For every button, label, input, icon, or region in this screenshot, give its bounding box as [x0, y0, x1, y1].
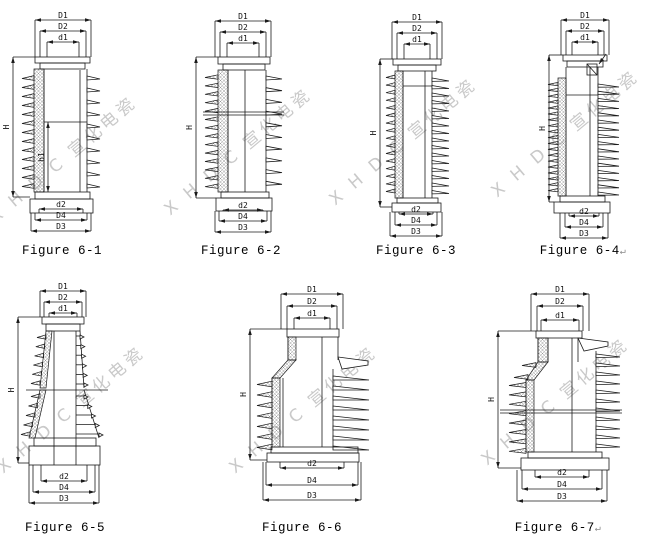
shed-rib [22, 130, 34, 135]
shed-rib [31, 394, 40, 398]
section-band [272, 360, 296, 378]
shed-rib [386, 136, 395, 140]
figure-6-6: D1D2d1Hd2D4D3 [239, 285, 369, 502]
shed-fin [596, 444, 620, 448]
dim-arrow [496, 462, 500, 468]
shed-rib [22, 166, 34, 171]
dim-arrow [597, 225, 603, 229]
shed-fin [333, 376, 369, 380]
figure-6-5: D1D2d1Hd2D4D3 [7, 282, 108, 505]
dim-arrow [93, 501, 99, 505]
top-cap [567, 61, 603, 67]
dim-arrow [566, 29, 572, 33]
bottom-dim-label: D3 [238, 223, 248, 232]
figure-6-2: D1D2d1Hd2D4D3 [185, 12, 284, 234]
shed-rib [257, 444, 272, 450]
dim-arrow [496, 331, 500, 337]
shed-fin [596, 435, 620, 439]
shed-rib [509, 420, 526, 425]
dim-arrow [427, 212, 433, 216]
shed-rib [22, 94, 34, 99]
section-band [218, 70, 228, 192]
dim-arrow [565, 225, 571, 229]
dim-arrow [215, 19, 221, 23]
shed-rib [509, 448, 526, 453]
dim-arrow [535, 475, 541, 479]
shoulder-lip [338, 357, 368, 369]
top-dim-label: D1 [412, 13, 422, 22]
ring-tooth [82, 354, 86, 358]
dim-arrow [583, 475, 589, 479]
ring-tooth [83, 373, 87, 377]
shed-fin [596, 426, 620, 430]
shed-fin [598, 149, 619, 152]
dim-arrow [81, 218, 87, 222]
shed-rib [386, 121, 395, 125]
height-dim-label: H [538, 126, 547, 131]
ring-tooth [88, 405, 92, 409]
bottom-flange [397, 198, 438, 203]
dim-arrow [265, 19, 271, 23]
shed-rib [548, 106, 558, 109]
dim-arrow [40, 29, 46, 33]
dim-arrow [573, 318, 579, 322]
shed-rib [548, 100, 558, 103]
shed-fin [87, 184, 100, 188]
shed-rib [205, 83, 218, 87]
dim-arrow [531, 292, 537, 296]
drawing-page: X H D C 宣化电瓷 X H D C 宣化电瓷 X H D C 宣化电瓷 X… [0, 0, 645, 547]
dim-arrow [81, 479, 87, 483]
dim-arrow [517, 499, 523, 503]
top-dim-label: D1 [238, 12, 248, 21]
dim-arrow [29, 501, 35, 505]
shed-rib [386, 159, 395, 163]
shed-fin [87, 112, 100, 116]
dim-arrow [266, 483, 272, 487]
shed-rib [548, 189, 558, 192]
bottom-dim-label: d2 [307, 459, 317, 468]
shed-fin [432, 176, 449, 179]
shed-fin [432, 168, 449, 171]
shed-fin [432, 101, 449, 104]
bottom-dim-label: d2 [579, 207, 589, 216]
shed-rib [32, 372, 41, 376]
shed-fin [598, 91, 619, 94]
shed-fin [432, 161, 449, 164]
ring-tooth [99, 433, 103, 437]
bottom-flange [528, 452, 602, 458]
bottom-flange [560, 196, 605, 202]
shed-fin [598, 170, 619, 173]
shed-fin [432, 123, 449, 126]
bottom-dim-label: D4 [238, 212, 248, 221]
ring-tooth [81, 345, 85, 349]
shed-rib [548, 88, 558, 91]
top-dim-label: D1 [555, 285, 565, 294]
shed-rib [205, 100, 218, 104]
shed-fin [598, 98, 619, 101]
dim-arrow [547, 55, 551, 61]
shed-rib [35, 353, 44, 357]
figure-6-4: D1D2d1Hd2D4D3 [538, 11, 619, 240]
ring-tooth [84, 383, 88, 387]
dim-arrow [85, 18, 91, 22]
top-dim-label: D2 [307, 297, 317, 306]
dim-arrow [35, 218, 41, 222]
bottom-dim-label: D4 [411, 216, 421, 225]
dim-arrow [596, 487, 602, 491]
shed-fin [266, 146, 282, 150]
bottom-dim-label: D4 [557, 480, 567, 489]
top-dim-label: D1 [307, 285, 317, 294]
top-dim-label: d1 [58, 33, 68, 42]
dim-arrow [397, 31, 403, 35]
shed-fin [432, 191, 449, 194]
shed-fin [598, 178, 619, 181]
shed-rib [36, 344, 45, 348]
bottom-flange [221, 192, 269, 198]
dim-arrow [248, 454, 252, 460]
shed-fin [266, 88, 282, 92]
shed-rib [548, 82, 558, 85]
bottom-dim-label: d2 [411, 205, 421, 214]
ring-tooth [92, 414, 96, 418]
dim-arrow [80, 29, 86, 33]
shed-rib [509, 383, 526, 388]
bottom-flange [29, 446, 100, 465]
dim-arrow [331, 304, 337, 308]
bottom-dim-label: d2 [238, 201, 248, 210]
dim-arrow [603, 18, 609, 22]
inner-height-dim-label: h1 [37, 152, 46, 162]
technical-drawing: D1D2d1Hh1d2D4D3 D1D2d1Hd2D4D3 D1D2d1Hd2D… [0, 0, 645, 547]
shed-rib [257, 381, 272, 387]
top-dim-label: D1 [58, 282, 68, 291]
dim-arrow [253, 41, 259, 45]
dim-arrow [219, 219, 225, 223]
shed-rib [548, 130, 558, 133]
shed-rib [386, 113, 395, 117]
dim-arrow [378, 201, 382, 207]
shed-rib [22, 139, 34, 144]
shed-fin [333, 416, 369, 420]
shed-rib [386, 83, 395, 87]
top-dim-label: D1 [58, 11, 68, 20]
shed-rib [548, 118, 558, 121]
shed-rib [257, 392, 272, 398]
dim-arrow [294, 316, 300, 320]
dim-arrow [378, 59, 382, 65]
figure-6-1-caption: Figure 6-1 [22, 244, 102, 258]
height-dim-label: H [7, 387, 16, 392]
top-cap [393, 59, 441, 65]
shed-fin [598, 156, 619, 159]
shed-fin [598, 120, 619, 123]
top-cap [35, 57, 90, 63]
top-cap [42, 317, 84, 324]
dim-arrow [399, 212, 405, 216]
shed-fin [596, 354, 620, 358]
shed-rib [386, 75, 395, 79]
bottom-dim-label: D3 [307, 491, 317, 500]
shed-rib [548, 153, 558, 156]
shed-rib [205, 134, 218, 138]
caption-text: Figure 6-1 [22, 244, 102, 258]
shed-rib [205, 75, 218, 79]
dim-arrow [392, 20, 398, 24]
line [80, 331, 84, 388]
dim-arrow [592, 40, 598, 44]
figure-6-7-caption: Figure 6-7↵ [515, 521, 602, 535]
height-dim-label: H [239, 392, 248, 397]
bottom-flange [34, 438, 96, 446]
shed-rib [548, 94, 558, 97]
dim-arrow [436, 20, 442, 24]
dim-arrow [77, 207, 83, 211]
shed-rib [22, 103, 34, 108]
dim-arrow [11, 191, 15, 197]
dim-arrow [227, 41, 233, 45]
shed-rib [548, 141, 558, 144]
shed-fin [598, 163, 619, 166]
shed-rib [257, 413, 272, 419]
bottom-dim-label: D3 [557, 492, 567, 501]
shed-rib [386, 90, 395, 94]
shed-rib [22, 175, 34, 180]
dim-arrow [431, 223, 437, 227]
height-dim-label: H [487, 397, 496, 402]
dim-arrow [569, 214, 575, 218]
figure-6-7: D1D2d1Hd2D4D3 [487, 285, 622, 503]
return-mark: ↵ [595, 524, 602, 535]
dim-arrow [44, 300, 50, 304]
shed-rib [509, 401, 526, 406]
dim-arrow [85, 229, 91, 233]
dim-arrow [33, 490, 39, 494]
shed-fin [432, 146, 449, 149]
shed-rib [29, 403, 38, 407]
shed-fin [596, 372, 620, 376]
shed-fin [87, 88, 100, 92]
section-band [526, 380, 534, 452]
bottom-dim-label: D3 [59, 494, 69, 503]
dim-arrow [16, 317, 20, 323]
shed-rib [548, 124, 558, 127]
shed-rib [21, 432, 30, 436]
shed-rib [509, 392, 526, 397]
shed-fin [598, 185, 619, 188]
shed-rib [257, 402, 272, 408]
shed-fin [596, 417, 620, 421]
height-dim-label: H [2, 124, 11, 129]
dim-arrow [16, 457, 20, 463]
shed-fin [266, 158, 282, 162]
shed-fin [598, 106, 619, 109]
shed-fin [596, 363, 620, 367]
bottom-dim-label: D3 [411, 227, 421, 236]
dim-arrow [436, 234, 442, 238]
dim-arrow [31, 229, 37, 233]
dim-arrow [601, 499, 607, 503]
shed-rib [205, 167, 218, 171]
dim-arrow [598, 29, 604, 33]
dim-arrow [35, 18, 41, 22]
shed-fin [333, 406, 369, 410]
shed-fin [596, 381, 620, 385]
section-band [558, 78, 566, 196]
ring-tooth [84, 395, 88, 399]
bottom-dim-label: D3 [579, 229, 589, 238]
shed-rib [22, 76, 34, 81]
ring-tooth [82, 364, 86, 368]
section-band [34, 69, 44, 192]
dim-arrow [89, 490, 95, 494]
dim-arrow [47, 40, 53, 44]
top-cap [287, 329, 339, 337]
dim-arrow [572, 40, 578, 44]
shed-rib [522, 363, 536, 368]
shed-rib [386, 128, 395, 132]
dim-arrow [352, 483, 358, 487]
top-dim-label: d1 [555, 311, 565, 320]
shed-rib [257, 423, 272, 429]
dim-arrow [281, 292, 287, 296]
shed-rib [33, 362, 42, 366]
shed-fin [432, 183, 449, 186]
dim-arrow [194, 57, 198, 63]
shed-rib [22, 112, 34, 117]
shed-fin [266, 99, 282, 103]
top-dim-label: D2 [238, 23, 248, 32]
shed-rib [386, 166, 395, 170]
shed-fin [333, 396, 369, 400]
shed-rib [548, 171, 558, 174]
dim-arrow [46, 186, 50, 192]
caption-text: Figure 6-4 [540, 244, 620, 258]
shed-rib [386, 189, 395, 193]
bottom-dim-label: D4 [56, 211, 66, 220]
bottom-dim-label: d2 [59, 472, 69, 481]
caption-text: Figure 6-6 [262, 521, 342, 535]
shed-rib [22, 85, 34, 90]
shed-fin [596, 399, 620, 403]
thread-detail [587, 64, 597, 75]
dim-arrow [541, 318, 547, 322]
shed-rib [548, 165, 558, 168]
shed-fin [432, 86, 449, 89]
shed-fin [596, 390, 620, 394]
shed-rib [386, 181, 395, 185]
shed-rib [22, 157, 34, 162]
dim-arrow [547, 196, 551, 202]
shed-rib [26, 413, 35, 417]
dim-arrow [593, 214, 599, 218]
shoulder-lip [578, 338, 608, 351]
caption-text: Figure 6-5 [25, 521, 105, 535]
caption-text: Figure 6-3 [376, 244, 456, 258]
caption-text: Figure 6-7 [515, 521, 595, 535]
shed-fin [432, 138, 449, 141]
figure-6-2-caption: Figure 6-2 [201, 244, 281, 258]
shed-fin [266, 123, 282, 127]
return-mark: ↵ [620, 247, 627, 258]
section-band [538, 338, 548, 362]
top-dim-label: D2 [580, 22, 590, 31]
shed-fin [266, 181, 282, 185]
shed-fin [87, 76, 100, 80]
shed-rib [386, 105, 395, 109]
dim-arrow [560, 236, 566, 240]
dim-arrow [261, 219, 267, 223]
caption-text: Figure 6-2 [201, 244, 281, 258]
shed-rib [386, 98, 395, 102]
top-dim-label: D1 [580, 11, 590, 20]
shed-fin [432, 131, 449, 134]
shed-fin [266, 170, 282, 174]
shed-fin [87, 172, 100, 176]
ring-tooth [95, 424, 99, 428]
shed-rib [548, 177, 558, 180]
shed-rib [514, 375, 528, 380]
dim-arrow [265, 230, 271, 234]
bottom-dim-label: D4 [59, 483, 69, 492]
shed-rib [205, 142, 218, 146]
ring-tooth [80, 335, 84, 339]
shed-rib [386, 174, 395, 178]
top-cap [46, 324, 80, 331]
shed-rib [386, 151, 395, 155]
dim-arrow [76, 300, 82, 304]
shed-rib [548, 147, 558, 150]
shed-rib [205, 159, 218, 163]
shed-fin [333, 386, 369, 390]
bottom-dim-label: d2 [557, 468, 567, 477]
bottom-dim-label: d2 [56, 200, 66, 209]
figure-6-6-caption: Figure 6-6 [262, 521, 342, 535]
shed-rib [37, 335, 46, 339]
shed-rib [24, 422, 33, 426]
shed-fin [87, 136, 100, 140]
top-dim-label: D2 [555, 297, 565, 306]
dim-arrow [577, 304, 583, 308]
shed-rib [257, 434, 272, 440]
shed-rib [22, 184, 34, 189]
top-dim-label: d1 [238, 34, 248, 43]
shed-rib [22, 148, 34, 153]
shed-fin [333, 426, 369, 430]
dim-arrow [583, 292, 589, 296]
top-cap [218, 57, 270, 64]
dim-arrow [215, 230, 221, 234]
top-cap [40, 63, 85, 69]
shed-rib [548, 159, 558, 162]
shed-rib [22, 121, 34, 126]
shed-rib [205, 176, 218, 180]
shed-fin [598, 84, 619, 87]
top-dim-label: D2 [58, 22, 68, 31]
bottom-flange [35, 192, 90, 199]
dim-arrow [431, 31, 437, 35]
bottom-dim-label: D4 [307, 476, 317, 485]
top-cap [223, 64, 265, 70]
top-cap [398, 65, 436, 71]
top-dim-label: d1 [580, 33, 590, 42]
top-dim-label: d1 [58, 304, 68, 313]
dim-arrow [40, 289, 46, 293]
dim-arrow [248, 329, 252, 335]
shed-fin [598, 142, 619, 145]
